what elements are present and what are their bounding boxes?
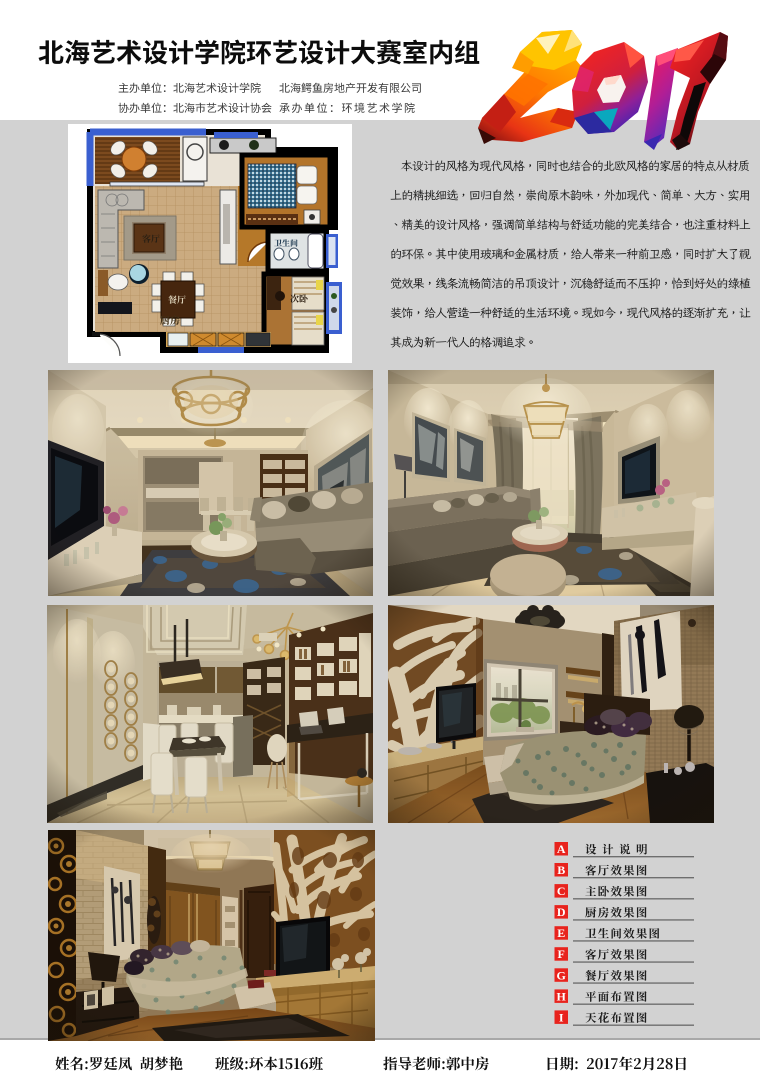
svg-text:D: D bbox=[557, 905, 566, 919]
svg-text:A: A bbox=[557, 842, 566, 856]
svg-text:B: B bbox=[557, 863, 565, 877]
svg-text:C: C bbox=[557, 884, 566, 898]
svg-text:I: I bbox=[559, 1010, 564, 1024]
svg-text:E: E bbox=[557, 926, 565, 940]
svg-text:H: H bbox=[557, 989, 567, 1003]
svg-text:F: F bbox=[558, 947, 565, 961]
svg-text:G: G bbox=[557, 968, 566, 982]
